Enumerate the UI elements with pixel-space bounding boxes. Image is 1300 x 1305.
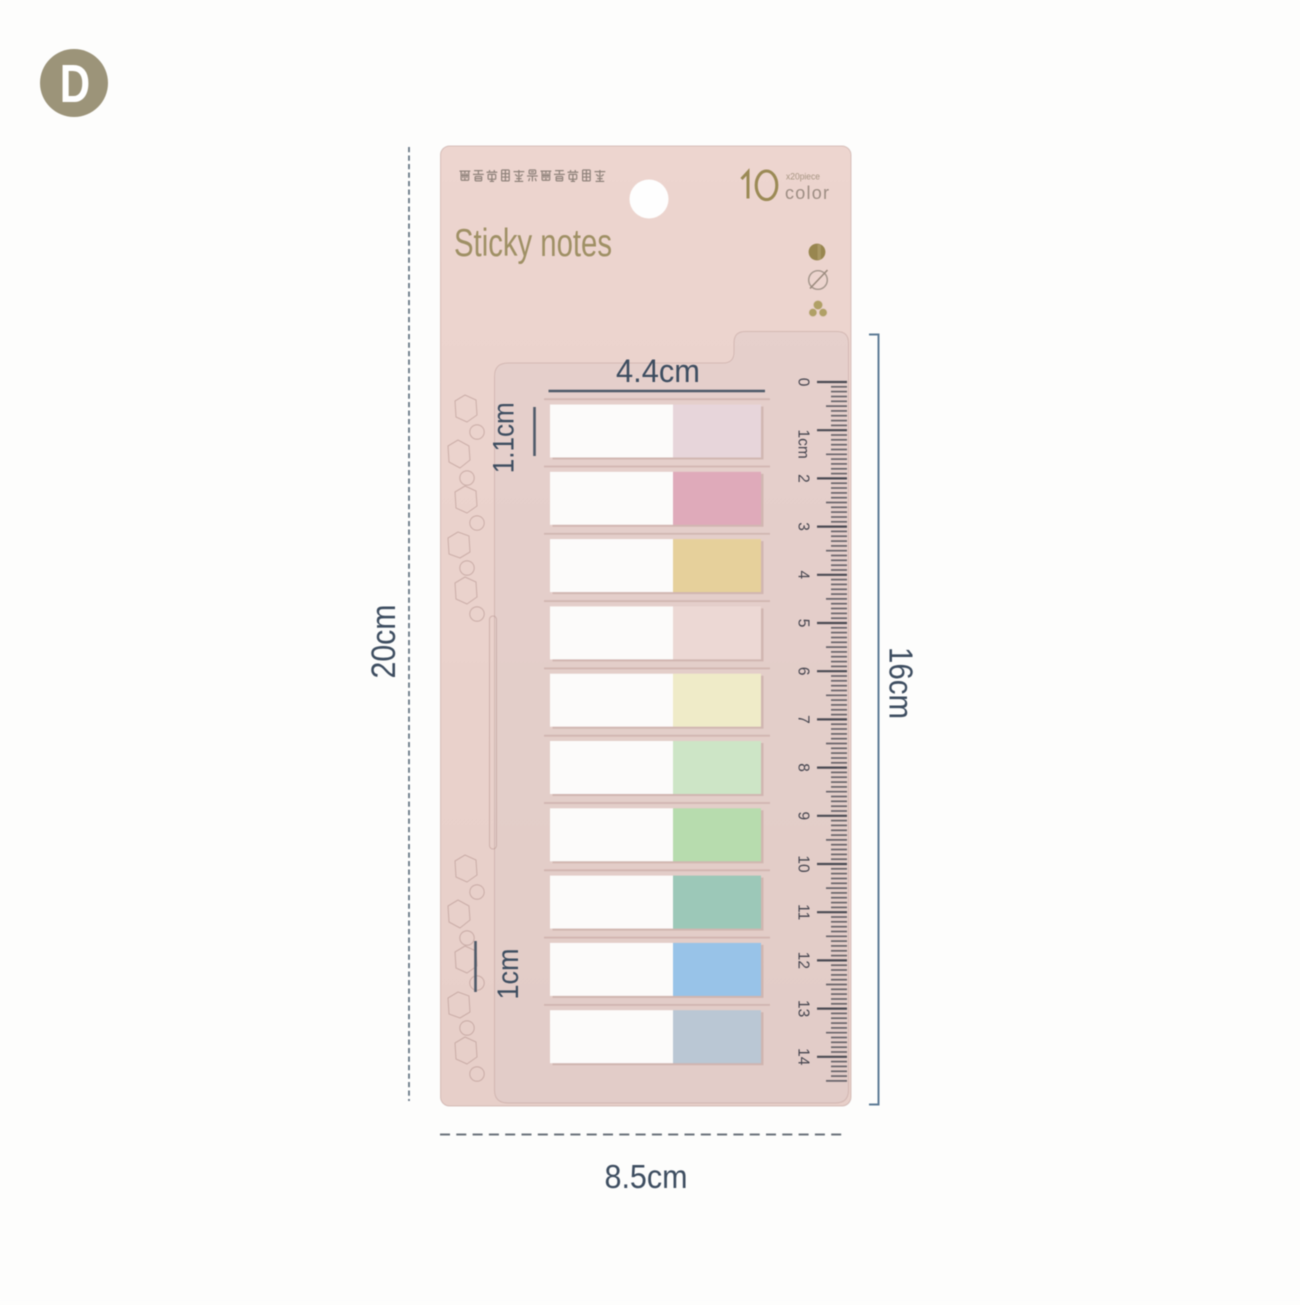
svg-text:1cm: 1cm [795,430,812,459]
svg-text:12: 12 [795,952,812,969]
svg-text:color: color [785,183,829,203]
svg-text:8: 8 [795,763,812,772]
svg-text:13: 13 [795,1000,812,1017]
svg-text:x20piece: x20piece [786,172,820,183]
svg-text:14: 14 [795,1048,812,1066]
svg-text:3: 3 [795,522,812,531]
svg-text:11: 11 [795,904,812,920]
svg-text:Sticky notes: Sticky notes [454,222,612,265]
svg-text:4: 4 [795,570,812,579]
svg-text:10: 10 [795,855,812,873]
svg-text:D: D [60,54,90,114]
svg-text:8.5cm: 8.5cm [605,1158,688,1195]
svg-text:20cm: 20cm [365,605,403,679]
svg-text:0: 0 [795,378,812,387]
svg-text:4.4cm: 4.4cm [616,353,700,389]
svg-text:2: 2 [795,474,812,483]
svg-text:16cm: 16cm [883,647,920,719]
svg-text:7: 7 [795,715,812,724]
svg-text:6: 6 [795,667,812,676]
svg-text:1.1cm: 1.1cm [488,402,521,473]
svg-text:9: 9 [795,811,812,820]
svg-text:5: 5 [795,619,812,628]
svg-text:1cm: 1cm [492,949,525,1000]
